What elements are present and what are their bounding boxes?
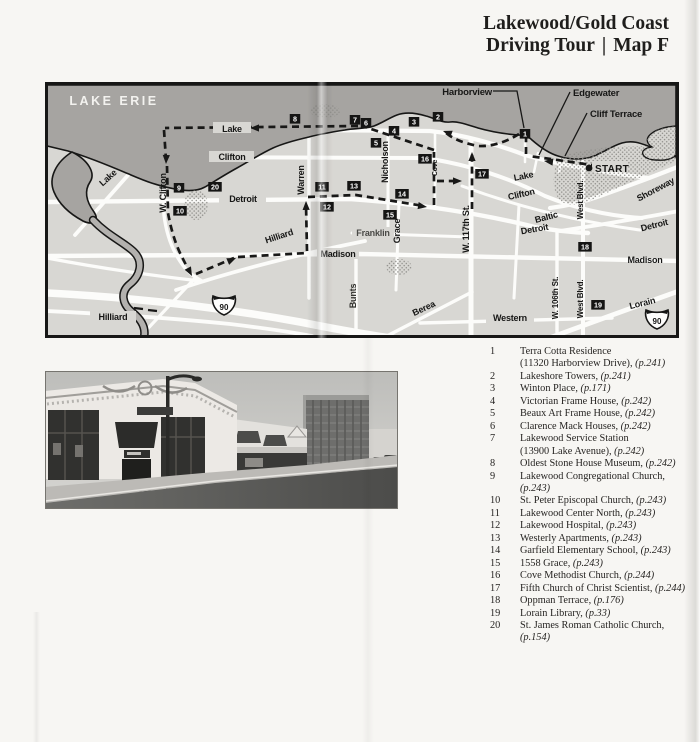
legend-item-10: 10St. Peter Episcopal Church, (p.243): [487, 495, 695, 507]
legend-page-ref: (p.243): [625, 508, 655, 519]
street-label-lake-erie: LAKE ERIE: [69, 94, 158, 108]
legend-page-ref: (p.241): [635, 358, 665, 369]
map-marker-number-19: 19: [594, 301, 602, 310]
scanned-book-page: Lakewood/Gold Coast Driving Tour|Map F: [0, 0, 700, 742]
legend-text: Lakewood Service Station(13900 Lake Aven…: [520, 433, 695, 458]
legend-page-ref: (p.243): [612, 533, 642, 544]
street-label-west-blvd-: West Blvd.: [576, 181, 585, 220]
legend-text: Lakeshore Towers, (p.241): [520, 371, 695, 383]
map-marker-number-17: 17: [478, 170, 486, 179]
map-marker-number-7: 7: [353, 116, 357, 125]
legend-item-2: 2Lakeshore Towers, (p.241): [487, 371, 695, 383]
callout-label-harborview: Harborview: [442, 87, 493, 98]
legend-page-ref: (p.243): [636, 495, 666, 506]
title-line-1: Lakewood/Gold Coast: [483, 13, 669, 35]
page-title: Lakewood/Gold Coast Driving Tour|Map F: [483, 13, 669, 57]
map-marker-number-3: 3: [412, 118, 416, 127]
map-marker-number-14: 14: [398, 190, 406, 199]
legend-number: 14: [487, 545, 520, 557]
legend-item-8: 8Oldest Stone House Museum, (p.242): [487, 458, 695, 470]
street-label-cove: Cove: [432, 160, 439, 177]
legend-item-6: 6Clarence Mack Houses, (p.242): [487, 421, 695, 433]
legend-text: Terra Cotta Residence(11320 Harborview D…: [520, 346, 695, 371]
legend-text: Westerly Apartments, (p.243): [520, 533, 695, 545]
legend-item-20: 20St. James Roman Catholic Church, (p.15…: [487, 620, 695, 645]
legend-text: Clarence Mack Houses, (p.242): [520, 421, 695, 433]
map-marker-number-4: 4: [392, 127, 396, 136]
legend-number: 1: [487, 346, 520, 371]
legend-item-14: 14Garfield Elementary School, (p.243): [487, 545, 695, 557]
street-label-warren: Warren: [296, 165, 306, 194]
legend-number: 19: [487, 608, 520, 620]
legend-page-ref: (p.242): [625, 408, 655, 419]
legend-text: St. James Roman Catholic Church, (p.154): [520, 620, 695, 645]
title-separator: |: [595, 35, 613, 57]
legend-number: 15: [487, 558, 520, 570]
street-label-hilliard: Hilliard: [99, 312, 128, 322]
page-edge-shadow-left: [33, 612, 40, 742]
legend-item-9: 9Lakewood Congregational Church, (p.243): [487, 471, 695, 496]
legend-item-18: 18Oppman Terrace, (p.176): [487, 595, 695, 607]
legend-text: Lakewood Hospital, (p.243): [520, 520, 695, 532]
legend-text: Lakewood Congregational Church, (p.243): [520, 471, 695, 496]
legend-text: Beaux Art Frame House, (p.242): [520, 408, 695, 420]
map-svg: 90 90: [45, 82, 679, 338]
legend-page-ref: (p.154): [520, 632, 550, 643]
legend-text: Lakewood Center North, (p.243): [520, 508, 695, 520]
legend-page-ref: (p.241): [601, 371, 631, 382]
legend-text: Lorain Library, (p.33): [520, 608, 695, 620]
street-label-nicholson: Nicholson: [380, 141, 390, 183]
legend-number: 2: [487, 371, 520, 383]
legend-number: 8: [487, 458, 520, 470]
legend-page-ref: (p.242): [614, 446, 644, 457]
map-marker-number-11: 11: [318, 183, 326, 192]
legend-number: 17: [487, 583, 520, 595]
legend-page-ref: (p.243): [520, 483, 550, 494]
legend-item-5: 5Beaux Art Frame House, (p.242): [487, 408, 695, 420]
map-marker-number-16: 16: [421, 155, 429, 164]
shield-90-left: 90: [220, 303, 229, 312]
street-label-w-117th-st-: W. 117th St.: [461, 205, 471, 253]
title-line-2: Driving Tour|Map F: [483, 35, 669, 57]
legend-text: Garfield Elementary School, (p.243): [520, 545, 695, 557]
legend-page-ref: (p.244): [624, 570, 654, 581]
legend-page-ref: (p.33): [585, 608, 610, 619]
legend-number: 18: [487, 595, 520, 607]
street-label-detroit: Detroit: [229, 194, 257, 204]
shield-90-right: 90: [653, 317, 662, 326]
legend-page-ref: (p.171): [581, 383, 611, 394]
legend-item-13: 13Westerly Apartments, (p.243): [487, 533, 695, 545]
legend-text: Oppman Terrace, (p.176): [520, 595, 695, 607]
legend-page-ref: (p.242): [621, 396, 651, 407]
legend-page-ref: (p.243): [606, 520, 636, 531]
map-marker-number-15: 15: [386, 211, 394, 220]
legend-page-ref: (p.244): [655, 583, 685, 594]
map-marker-number-2: 2: [436, 113, 440, 122]
legend-number: 10: [487, 495, 520, 507]
street-label-w-clifton: W. Clifton: [158, 173, 168, 213]
street-label-w-106th-st-: W. 106th St.: [551, 277, 560, 320]
legend-text: Cove Methodist Church, (p.244): [520, 570, 695, 582]
legend-number: 16: [487, 570, 520, 582]
legend-item-19: 19Lorain Library, (p.33): [487, 608, 695, 620]
legend-number: 9: [487, 471, 520, 496]
callout-label-edgewater: Edgewater: [573, 88, 620, 99]
legend-number: 11: [487, 508, 520, 520]
map-marker-number-8: 8: [293, 115, 297, 124]
callout-label-cliff-terrace: Cliff Terrace: [590, 109, 642, 120]
map-marker-number-1: 1: [523, 130, 527, 139]
map-marker-number-13: 13: [350, 182, 358, 191]
legend-number: 12: [487, 520, 520, 532]
legend-page-ref: (p.243): [641, 545, 671, 556]
legend-item-16: 16Cove Methodist Church, (p.244): [487, 570, 695, 582]
legend-page-ref: (p.242): [646, 458, 676, 469]
legend-item-15: 151558 Grace, (p.243): [487, 558, 695, 570]
legend-number: 13: [487, 533, 520, 545]
street-label-madison: Madison: [320, 249, 355, 259]
street-label-western: Western: [493, 313, 527, 323]
legend-item-4: 4Victorian Frame House, (p.242): [487, 396, 695, 408]
legend-text: St. Peter Episcopal Church, (p.243): [520, 495, 695, 507]
legend-page-ref: (p.176): [594, 595, 624, 606]
legend-number: 7: [487, 433, 520, 458]
legend-page-ref: (p.243): [573, 558, 603, 569]
map-marker-number-12: 12: [323, 203, 331, 212]
map-marker-number-18: 18: [581, 243, 589, 252]
legend-page-ref: (p.242): [621, 421, 651, 432]
street-label-clifton: Clifton: [218, 152, 245, 162]
legend-text: Fifth Church of Christ Scientist, (p.244…: [520, 583, 695, 595]
legend-item-17: 17Fifth Church of Christ Scientist, (p.2…: [487, 583, 695, 595]
legend-item-3: 3Winton Place, (p.171): [487, 383, 695, 395]
map-marker-number-10: 10: [176, 207, 184, 216]
driving-tour-map: 90 90: [45, 82, 679, 338]
map-marker-number-6: 6: [364, 119, 368, 128]
legend-text: Winton Place, (p.171): [520, 383, 695, 395]
street-label-lake: Lake: [222, 124, 242, 134]
map-marker-number-5: 5: [374, 139, 378, 148]
legend-text: Oldest Stone House Museum, (p.242): [520, 458, 695, 470]
legend-item-7: 7Lakewood Service Station(13900 Lake Ave…: [487, 433, 695, 458]
legend-item-1: 1Terra Cotta Residence(11320 Harborview …: [487, 346, 695, 371]
map-marker-number-9: 9: [177, 184, 181, 193]
street-label-madison: Madison: [627, 255, 662, 265]
tour-site-legend: 1Terra Cotta Residence(11320 Harborview …: [487, 346, 695, 645]
photo-svg: [45, 371, 398, 509]
street-photograph: [45, 371, 398, 509]
street-label-bunts: Bunts: [348, 284, 358, 309]
legend-number: 4: [487, 396, 520, 408]
legend-number: 6: [487, 421, 520, 433]
legend-number: 5: [487, 408, 520, 420]
legend-item-12: 12Lakewood Hospital, (p.243): [487, 520, 695, 532]
start-label: START: [595, 164, 629, 175]
legend-number: 20: [487, 620, 520, 645]
legend-text: Victorian Frame House, (p.242): [520, 396, 695, 408]
street-label-west-blvd-: West Blvd.: [576, 280, 585, 319]
start-bullet: [586, 165, 593, 172]
legend-text: 1558 Grace, (p.243): [520, 558, 695, 570]
street-label-franklin: Franklin: [356, 228, 389, 238]
map-marker-number-20: 20: [211, 183, 219, 192]
legend-number: 3: [487, 383, 520, 395]
legend-item-11: 11Lakewood Center North, (p.243): [487, 508, 695, 520]
